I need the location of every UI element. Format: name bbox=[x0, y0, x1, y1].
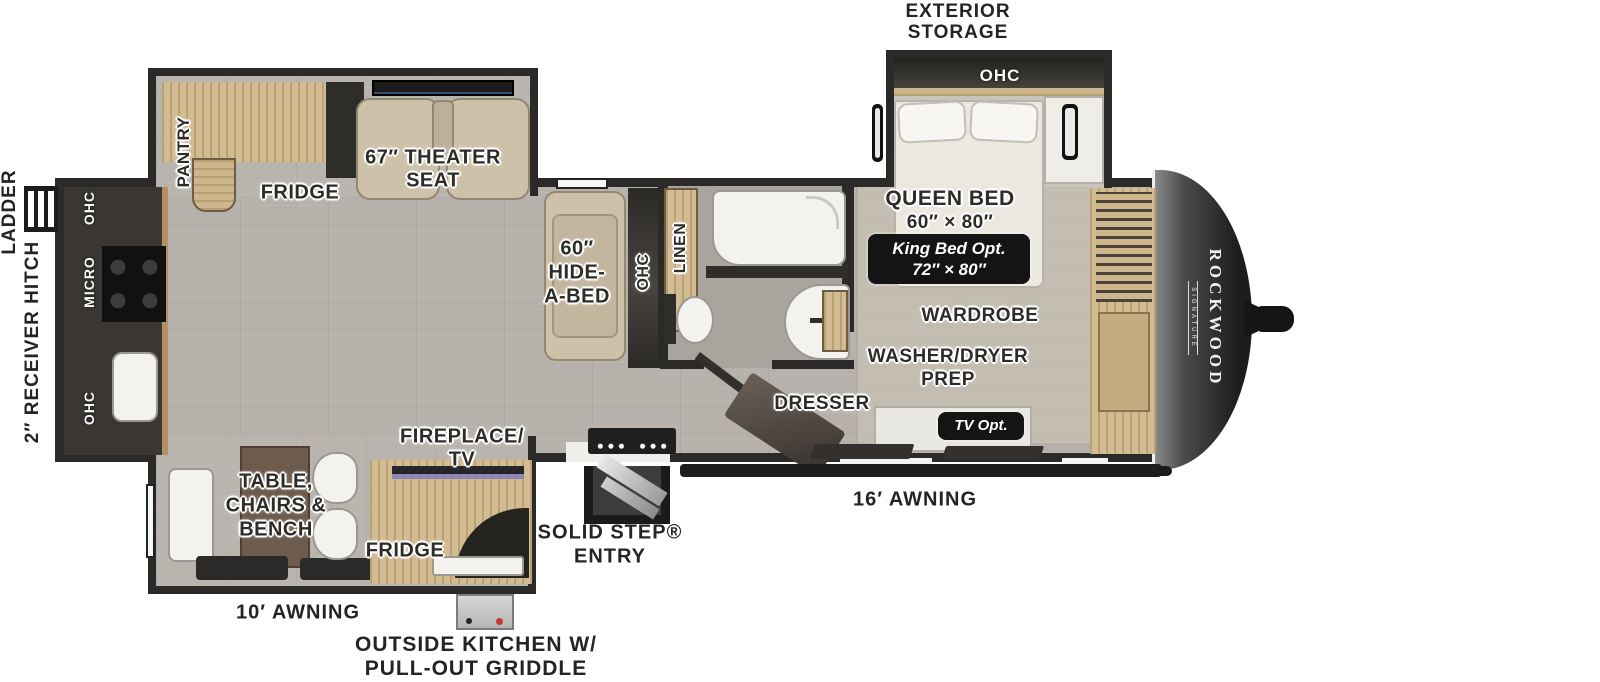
entry-label-2: ENTRY bbox=[574, 546, 646, 569]
queen-bed-label-2: 60″ × 80″ bbox=[907, 212, 994, 234]
outside-kitchen-label-1: OUTSIDE KITCHEN W/ bbox=[355, 633, 597, 657]
entry-label-1: SOLID STEP® bbox=[538, 522, 683, 545]
dresser-drawer-2 bbox=[942, 446, 1044, 459]
pull-out-griddle bbox=[432, 556, 524, 576]
rear-awning-label: 10′ AWNING bbox=[236, 602, 360, 625]
sofa-ohc-label: OHC bbox=[635, 253, 653, 290]
washer-dryer-label-2: PREP bbox=[921, 369, 975, 391]
king-bed-option-line2: 72″ × 80″ bbox=[868, 259, 1030, 280]
outside-kitchen-label-2: PULL-OUT GRIDDLE bbox=[365, 657, 587, 681]
toilet bbox=[676, 296, 714, 344]
hide-a-bed-label-3: A-BED bbox=[544, 286, 610, 309]
brand-mark: ROCKWOOD SIGNATURE bbox=[1187, 233, 1225, 403]
exterior-storage-label-1: EXTERIOR bbox=[905, 1, 1010, 23]
tv-option-badge: TV Opt. bbox=[938, 412, 1024, 440]
theater-seat-label-1: 67″ THEATER bbox=[365, 147, 501, 170]
floorplan-canvas: ROCKWOOD SIGNATURE LADDER 2″ RECEIVER HI… bbox=[0, 0, 1600, 682]
bed-pillow-right bbox=[969, 100, 1039, 144]
ladder-icon bbox=[24, 186, 58, 232]
dinette-label-2: CHAIRS & bbox=[226, 495, 327, 518]
queen-bed-label-1: QUEEN BED bbox=[885, 187, 1014, 211]
main-awning-rail bbox=[680, 464, 1162, 477]
king-bed-option-badge: King Bed Opt. 72″ × 80″ bbox=[868, 234, 1030, 284]
toilet-tank bbox=[664, 294, 676, 344]
solid-step-icon bbox=[584, 466, 670, 524]
dinette-label-1: TABLE, bbox=[239, 471, 313, 494]
kitchen-ohc-bottom-label: OHC bbox=[81, 391, 97, 425]
bed-slide-left-window bbox=[872, 104, 883, 162]
outside-kitchen-griddle-box bbox=[456, 594, 514, 630]
brand-series: SIGNATURE bbox=[1188, 281, 1198, 355]
ladder-label: LADDER bbox=[0, 169, 21, 254]
theater-seat-label-2: SEAT bbox=[406, 170, 460, 193]
front-wardrobe-doors bbox=[1098, 312, 1150, 412]
bed-pillow-left bbox=[897, 100, 967, 144]
linen-label: LINEN bbox=[672, 223, 690, 274]
hitch-knob-icon bbox=[1256, 306, 1294, 332]
kitchen-sink bbox=[112, 352, 158, 422]
dinette-window bbox=[146, 484, 155, 558]
bathroom-bottom-wall-right bbox=[772, 360, 854, 369]
dresser-drawer-1 bbox=[810, 444, 915, 459]
fireplace-label-1: FIREPLACE/ bbox=[400, 426, 524, 449]
receiver-hitch-label: 2″ RECEIVER HITCH bbox=[22, 241, 44, 443]
hide-a-bed-label-2: HIDE- bbox=[549, 262, 606, 285]
pantry-label: PANTRY bbox=[174, 117, 194, 188]
kitchen-micro-label: MICRO bbox=[81, 256, 97, 308]
kitchen-ohc-top-label: OHC bbox=[81, 191, 97, 225]
fridge-main-label: FRIDGE bbox=[261, 182, 340, 205]
main-awning-label: 16′ AWNING bbox=[853, 489, 977, 512]
bed-ohc-shelf bbox=[894, 88, 1104, 96]
bed-ohc-label: OHC bbox=[980, 66, 1021, 86]
vanity-cabinet bbox=[822, 290, 848, 352]
fridge-outside-label: FRIDGE bbox=[366, 540, 445, 563]
dinette-bench bbox=[168, 468, 214, 562]
theater-window bbox=[372, 80, 514, 96]
vanity-faucet-icon bbox=[810, 318, 822, 323]
tv-option-label: TV Opt. bbox=[938, 417, 1024, 436]
cooktop-icon bbox=[102, 246, 166, 322]
bed-slide-right-window bbox=[1062, 104, 1078, 160]
dinette-label-3: BENCH bbox=[239, 519, 313, 542]
exterior-storage-label-2: STORAGE bbox=[908, 22, 1009, 44]
fireplace-label-2: TV bbox=[449, 449, 476, 472]
pantry-lower-cabinet bbox=[192, 158, 236, 212]
main-awning-end bbox=[1156, 466, 1172, 476]
wardrobe-label: WARDROBE bbox=[922, 305, 1039, 327]
dinette-floor-mat-1 bbox=[196, 556, 288, 580]
hide-a-bed-label-1: 60″ bbox=[560, 238, 593, 261]
sofa-window bbox=[556, 178, 608, 189]
washer-dryer-label-1: WASHER/DRYER bbox=[868, 346, 1028, 368]
brand-name: ROCKWOOD bbox=[1205, 233, 1225, 403]
dresser-label: DRESSER bbox=[774, 393, 869, 415]
bathtub-ledge bbox=[706, 266, 848, 278]
front-wardrobe-slats bbox=[1096, 192, 1152, 302]
king-bed-option-line1: King Bed Opt. bbox=[868, 238, 1030, 259]
entry-step-mechanism bbox=[588, 428, 676, 454]
